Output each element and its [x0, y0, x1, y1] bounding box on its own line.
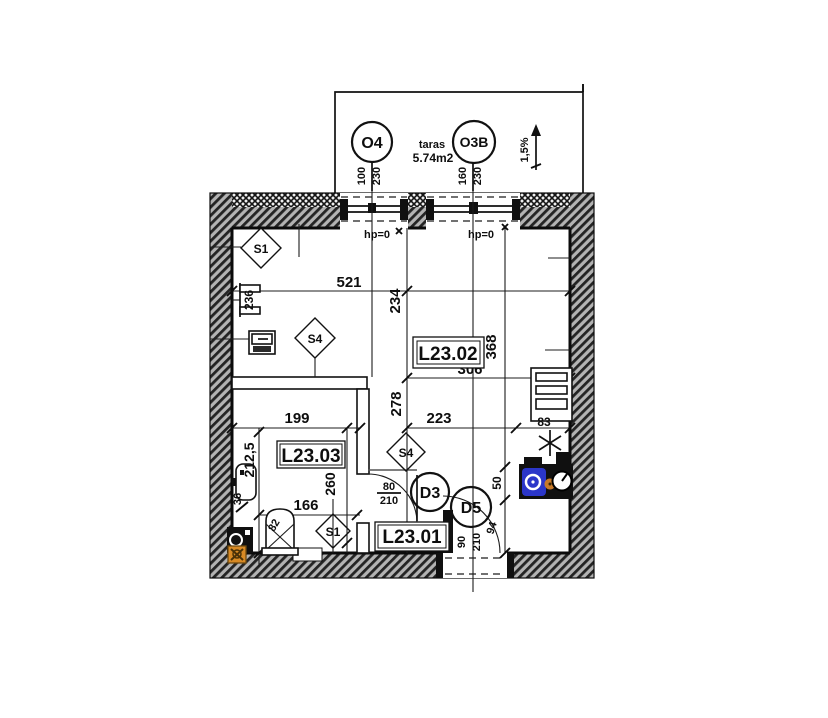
fridge-cabinet	[531, 368, 572, 421]
door-D5-height: 210	[471, 533, 483, 551]
window-O4-height: 230	[371, 167, 383, 185]
dim-bath-depth: 212,5	[241, 442, 257, 477]
window-O3B-sill: hp=0	[468, 229, 494, 241]
exterior-wall-bottom	[210, 553, 594, 578]
dim-bath-lower-width: 166	[293, 497, 318, 514]
switch-S1-top-label: S1	[254, 242, 269, 256]
exterior-wall-right	[570, 193, 594, 578]
floor-drain	[228, 546, 246, 563]
door-tag-D5-label: D5	[461, 500, 482, 517]
dim-fridge: 83	[537, 415, 551, 429]
dim-basin: 36	[232, 493, 244, 505]
terrace-area: 5.74m2	[413, 151, 454, 165]
floor-plan: 521 234 368 306 278 223 199 212,5 260 16…	[0, 0, 828, 718]
window-O4	[340, 193, 408, 228]
electrical-box	[249, 331, 275, 354]
switch-S1-bath-label: S1	[326, 525, 341, 539]
dim-room-width: 521	[336, 274, 361, 291]
bathroom-wall-horizontal	[232, 377, 367, 389]
door-tag-D3-label: D3	[420, 485, 441, 502]
window-tag-O4-label: O4	[361, 135, 382, 152]
room-label-living: L23.02	[418, 344, 477, 365]
toilet	[262, 509, 298, 555]
dim-hall-depth: 278	[388, 391, 405, 416]
switch-S4-hall-label: S4	[399, 446, 414, 460]
dim-radiator: 236	[242, 290, 256, 310]
dim-door-offset: 50	[490, 476, 504, 490]
exterior-wall-left	[210, 193, 232, 578]
window-O4-width: 100	[356, 167, 368, 185]
switch-S4-left-label: S4	[308, 332, 323, 346]
bathroom-wall-vertical-lower	[357, 523, 369, 553]
dim-bath-inner-depth: 260	[322, 472, 338, 496]
window-tag-O3B-label: O3B	[460, 134, 489, 150]
window-O3B-height: 230	[472, 167, 484, 185]
window-O3B-width: 160	[457, 167, 469, 185]
dim-right-depth: 368	[483, 334, 500, 359]
dim-bath-width: 199	[284, 410, 309, 427]
terrace-name: taras	[419, 139, 445, 151]
dim-room-depth: 234	[387, 288, 404, 314]
door-D3-height: 210	[380, 495, 398, 507]
door-D3-width: 80	[383, 481, 395, 493]
window-O4-sill: hp=0	[364, 229, 390, 241]
door-D5-width: 90	[456, 536, 468, 548]
room-label-hall: L23.01	[382, 527, 442, 548]
room-label-bathroom: L23.03	[281, 446, 340, 467]
bathroom-wall-vertical	[357, 389, 369, 474]
dim-hall-width: 223	[426, 410, 451, 427]
terrace-slope: 1,5%	[519, 137, 531, 162]
